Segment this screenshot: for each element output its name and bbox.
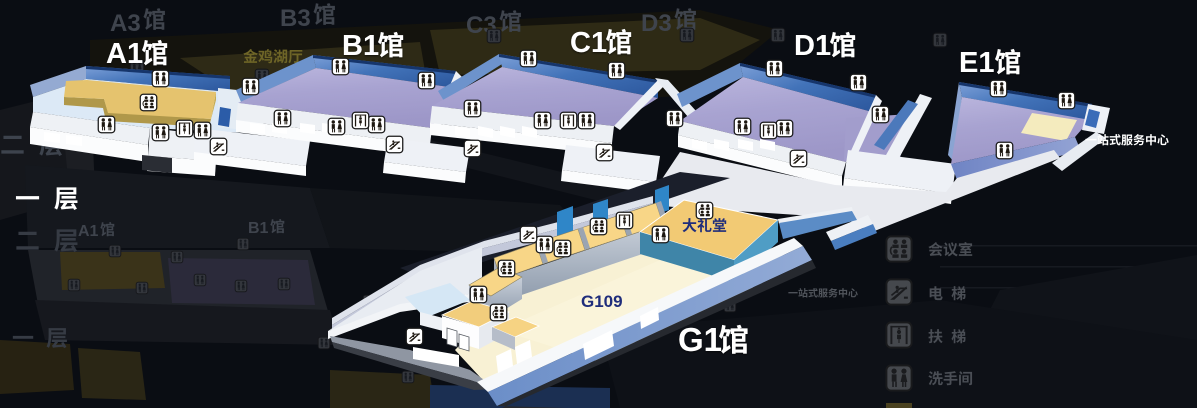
svg-text:G1: G1 xyxy=(678,321,722,358)
svg-text:C1: C1 xyxy=(570,27,607,59)
svg-text:A3: A3 xyxy=(110,10,141,37)
svg-text:B1: B1 xyxy=(248,220,269,237)
svg-text:A1: A1 xyxy=(106,38,143,70)
svg-text:A1: A1 xyxy=(78,223,99,240)
svg-text:D1: D1 xyxy=(794,30,831,62)
svg-text:G109: G109 xyxy=(581,292,623,311)
svg-text:E1: E1 xyxy=(959,47,994,79)
svg-text:D3: D3 xyxy=(641,10,672,37)
svg-text:B1: B1 xyxy=(342,30,379,62)
svg-text:B3: B3 xyxy=(280,5,311,32)
